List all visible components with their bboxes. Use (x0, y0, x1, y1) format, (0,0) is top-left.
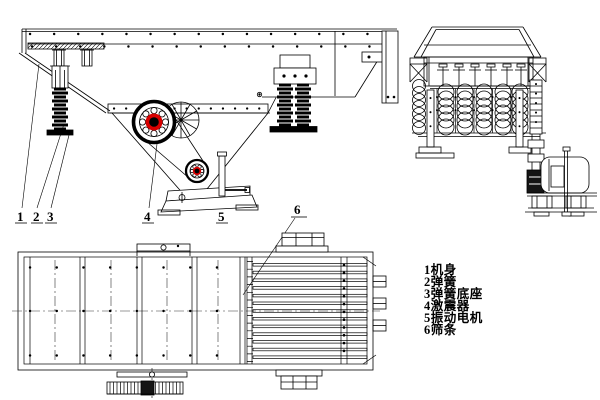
callout-5-vibration-motor: 5 (218, 209, 225, 224)
hopper (414, 27, 541, 57)
comb-strip (247, 257, 253, 364)
callout-leaders (22, 64, 295, 295)
centerlines (12, 260, 380, 362)
technical-drawing-page: 1 2 3 4 5 6 (0, 0, 600, 400)
deck-bolt-grid (30, 268, 243, 356)
callout-3-spring-base: 3 (47, 209, 54, 224)
side-bracket-left (410, 58, 427, 82)
drawing-canvas: 1 2 3 4 5 6 (0, 0, 600, 400)
callout-6-screen-bars: 6 (294, 202, 301, 217)
legend-item-screen-bars: 6筛条 (424, 322, 457, 337)
motor-pulley (186, 160, 208, 182)
spring-mount-top (276, 233, 328, 252)
discharge-lip (362, 31, 398, 103)
spring-base-right (270, 127, 317, 133)
end-view (410, 27, 597, 216)
motor-plan-view (107, 368, 187, 398)
belt-tensioner (218, 152, 227, 196)
hanger-bolts (437, 64, 527, 86)
left-spring-guide (50, 66, 70, 88)
spring-bank (430, 84, 530, 135)
callout-2-spring: 2 (33, 209, 40, 224)
discharge-tabs (373, 276, 386, 331)
motor-base-side (158, 186, 258, 215)
side-view (15, 29, 398, 295)
side-spring-left (413, 80, 426, 135)
callout-1-machine-body: 1 (17, 209, 24, 224)
top-view (12, 233, 386, 398)
exciter-wheel (134, 102, 175, 143)
right-spring-hanger (274, 55, 316, 84)
spring-mount-bottom (276, 370, 322, 389)
support-spring-right-front (277, 85, 293, 125)
support-spring-right-rear (295, 85, 311, 125)
machine-body-end (424, 57, 533, 86)
vibration-motor-end (541, 157, 589, 193)
mount-bracket-top (137, 244, 190, 256)
support-spring-left (52, 89, 68, 129)
trough-body (19, 29, 397, 113)
legend: 1机身 2弹簧 3弹簧底座 4激震器 5振动电机 6筛条 (424, 262, 483, 337)
callout-4-exciter: 4 (144, 209, 151, 224)
motor-base-end (525, 193, 597, 216)
side-bracket-right (529, 58, 546, 82)
callout-underlines (15, 217, 307, 223)
